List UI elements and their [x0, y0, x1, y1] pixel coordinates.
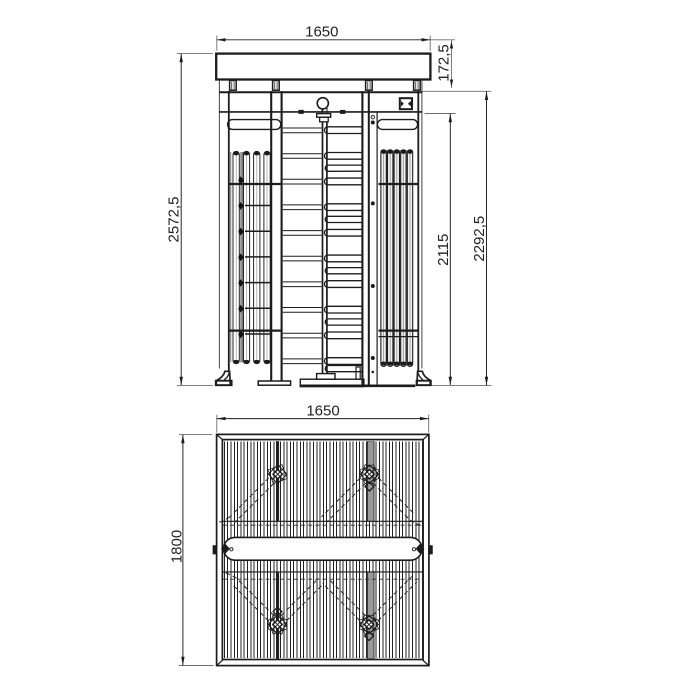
svg-text:1650: 1650 — [305, 24, 338, 41]
svg-text:2115: 2115 — [435, 234, 452, 266]
svg-text:1650: 1650 — [306, 402, 339, 419]
svg-text:1800: 1800 — [168, 530, 185, 563]
svg-text:172,5: 172,5 — [435, 44, 452, 82]
svg-text:2572,5: 2572,5 — [166, 197, 183, 243]
svg-text:2292,5: 2292,5 — [471, 216, 488, 262]
